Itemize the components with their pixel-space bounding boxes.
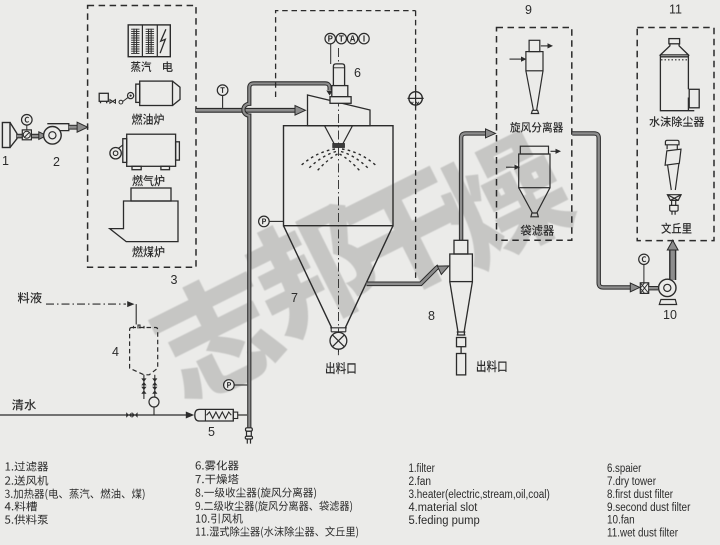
- svg-text:2: 2: [53, 155, 60, 169]
- svg-text:7: 7: [291, 291, 298, 305]
- svg-text:1.filter: 1.filter: [409, 463, 435, 475]
- svg-text:9.second dust filter: 9.second dust filter: [607, 502, 691, 514]
- svg-text:7.dry tower: 7.dry tower: [607, 476, 656, 488]
- svg-text:6.spaier: 6.spaier: [607, 463, 642, 475]
- svg-text:6: 6: [354, 66, 361, 80]
- svg-text:8: 8: [428, 309, 435, 323]
- svg-text:9: 9: [525, 3, 532, 17]
- svg-text:3: 3: [171, 273, 178, 287]
- svg-text:2.fan: 2.fan: [409, 476, 432, 488]
- svg-text:5: 5: [208, 425, 215, 439]
- svg-text:10: 10: [663, 308, 677, 322]
- svg-text:4: 4: [112, 345, 119, 359]
- svg-text:8.first dust filter: 8.first dust filter: [607, 489, 673, 501]
- svg-text:1: 1: [2, 154, 9, 168]
- svg-text:11.wet dust filter: 11.wet dust filter: [607, 527, 678, 539]
- svg-text:11: 11: [669, 3, 682, 17]
- svg-text:4.material slot: 4.material slot: [409, 502, 479, 514]
- svg-text:3.heater(electric,stream,oil,c: 3.heater(electric,stream,oil,coal): [409, 489, 550, 501]
- svg-text:5.feding pump: 5.feding pump: [409, 515, 480, 527]
- svg-text:10.fan: 10.fan: [607, 515, 635, 527]
